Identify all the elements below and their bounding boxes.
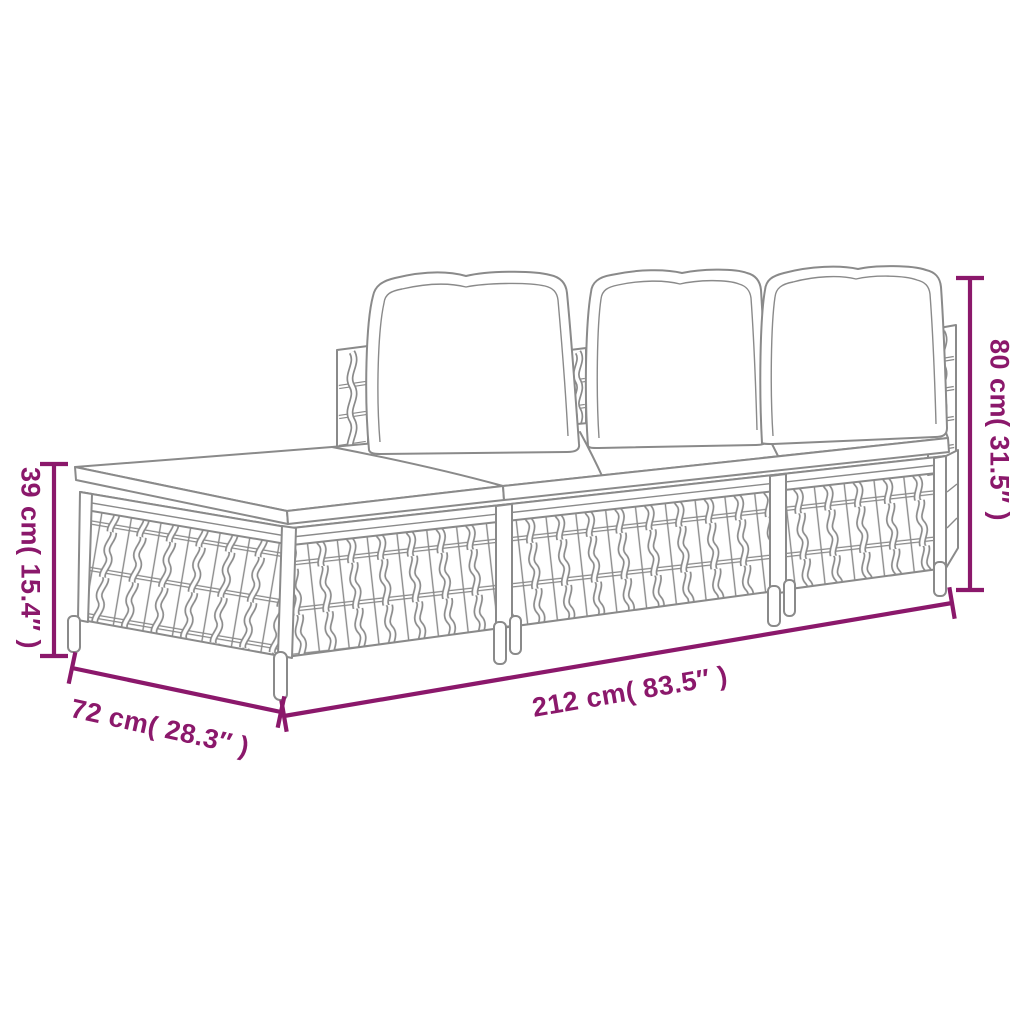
dimension-lines xyxy=(0,0,1024,1024)
dimension-line-height xyxy=(956,278,984,590)
dimension-line-length xyxy=(281,587,954,732)
dimension-label-height: 80 cm( 31.5″ ) xyxy=(984,339,1015,521)
dimension-diagram: 80 cm( 31.5″ ) 39 cm( 15.4″ ) 212 cm( 83… xyxy=(0,0,1024,1024)
dimension-label-seat-height: 39 cm( 15.4″ ) xyxy=(15,467,46,649)
